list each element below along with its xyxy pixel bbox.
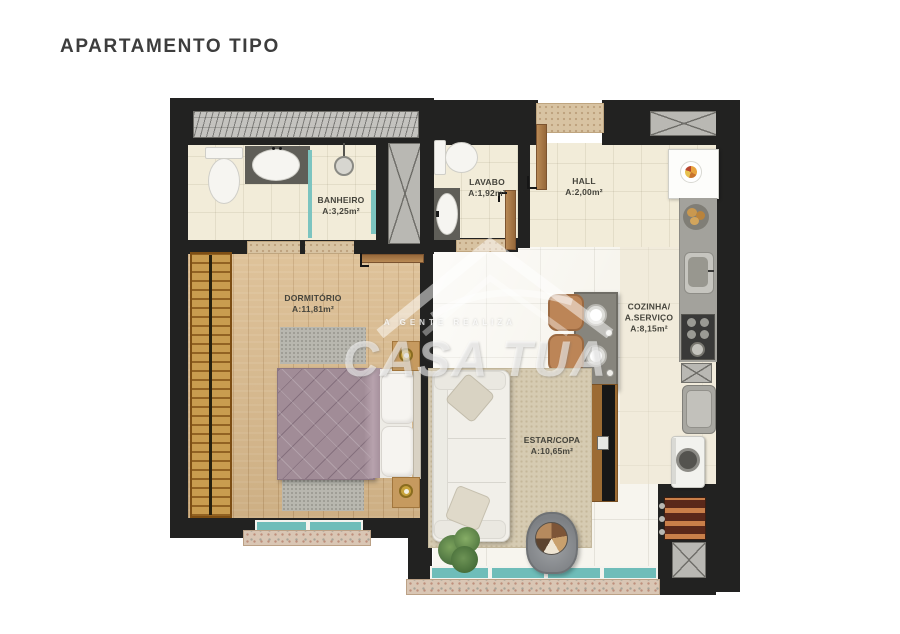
stove-burner-4 (700, 330, 709, 339)
wall-lavabo-left (420, 98, 434, 254)
room-label-hall: HALL A:2,00m² (565, 176, 603, 198)
fruit-plate-food (685, 166, 697, 178)
bathroom-faucet-icon-2 (279, 147, 282, 150)
room-label-cozinha: COZINHA/ A.SERVIÇO A:8,15m² (625, 301, 673, 334)
room-area: A:8,15m² (625, 324, 673, 335)
room-name: DORMITÓRIO (284, 293, 341, 304)
room-area: A:3,25m² (318, 206, 365, 217)
island-plate-2 (585, 345, 607, 367)
living-window-mullion-1 (488, 566, 492, 580)
bbq-knob-3 (659, 529, 665, 535)
stove-burner-2 (700, 318, 709, 327)
bed-headboard (413, 367, 421, 479)
shower-stem (343, 143, 345, 157)
washer-panel (672, 438, 676, 484)
door-jamb-2 (354, 241, 359, 254)
room-label-banheiro: BANHEIRO A:3,25m² (318, 195, 365, 217)
shaft-box (388, 143, 422, 244)
door-jamb-1 (300, 241, 305, 254)
fridge-dispenser (597, 436, 609, 450)
bed-pillow-1 (381, 373, 415, 424)
room-name: ESTAR/COPA (524, 435, 580, 446)
island-plate-1 (585, 304, 607, 326)
wardrobe-rail (209, 255, 212, 515)
bedroom-door-handle-icon (360, 253, 369, 267)
entry-door-handle-icon (527, 176, 537, 189)
room-area: A:1,92m² (468, 188, 506, 199)
bed-duvet (277, 368, 375, 480)
shaft-hatch-top-right (650, 111, 718, 136)
lavabo-toilet-bowl (445, 142, 478, 173)
room-label-estar: ESTAR/COPA A:10,65m² (524, 435, 580, 457)
room-area: A:2,00m² (565, 187, 603, 198)
stove-burner-large (690, 342, 705, 357)
bbq-grill (664, 497, 706, 540)
lavabo-sink (436, 193, 458, 235)
room-area: A:10,65m² (524, 446, 580, 457)
island-cup-2 (606, 369, 614, 377)
stove-burner-1 (687, 318, 696, 327)
living-window-mullion-3 (600, 566, 604, 580)
lamp-top-dot (404, 353, 409, 358)
bathroom-faucet-icon (272, 147, 275, 150)
room-name-2: A.SERVIÇO (625, 312, 673, 323)
bed-pillow-2 (381, 426, 415, 477)
lavabo-faucet-icon (436, 211, 439, 217)
sofa-seat-divider-2 (448, 482, 506, 483)
washer-lid-icon (676, 448, 700, 472)
room-label-lavabo: LAVABO A:1,92m² (468, 177, 506, 199)
corridor-threshold (456, 239, 506, 252)
kitchen-faucet-icon (708, 270, 714, 272)
room-name: COZINHA/ (625, 301, 673, 312)
sofa-seat-divider-1 (448, 438, 506, 439)
bedroom-rug-bottom (282, 479, 364, 511)
entry-door-leaf (536, 124, 547, 190)
service-hatch-box (672, 542, 706, 578)
stove-burner-3 (687, 330, 696, 339)
shower-head-icon (334, 156, 354, 176)
kitchen-hatch-box (681, 363, 712, 383)
room-name: HALL (565, 176, 603, 187)
room-label-dormitorio: DORMITÓRIO A:11,81m² (284, 293, 341, 315)
wall-right (716, 100, 740, 592)
laundry-sink-basin (686, 390, 712, 428)
room-area: A:11,81m² (284, 304, 341, 315)
wall-left (170, 98, 188, 538)
bedroom-rug-top (280, 327, 366, 364)
living-window-sill (406, 579, 660, 595)
bedroom-door-leaf (361, 254, 424, 263)
kitchen-sink-basin (688, 257, 708, 287)
island-cup-1 (605, 329, 613, 337)
bread-piece-3 (690, 217, 699, 225)
lamp-bottom-dot (404, 489, 409, 494)
room-name: LAVABO (468, 177, 506, 188)
page-title: APARTAMENTO TIPO (60, 36, 280, 58)
room-name: BANHEIRO (318, 195, 365, 206)
technical-hatch-strip (193, 111, 419, 138)
floor-plan-canvas: APARTAMENTO TIPO (0, 0, 900, 634)
shower-glass-partition (308, 150, 312, 238)
plant-leaf-3 (451, 546, 478, 573)
bar-stool-2 (548, 334, 584, 372)
bathroom-sink (252, 149, 300, 181)
bedroom-window-sill (243, 530, 371, 546)
bbq-knob-2 (659, 516, 665, 522)
bar-stool-1 (548, 294, 584, 331)
wall-bathroom-shaft (376, 138, 388, 244)
bathroom-toilet-bowl (208, 158, 240, 204)
bbq-knob-1 (659, 503, 665, 509)
armchair-pillow (535, 522, 568, 555)
plant (438, 527, 484, 573)
shaft-glass-strip (371, 190, 376, 234)
